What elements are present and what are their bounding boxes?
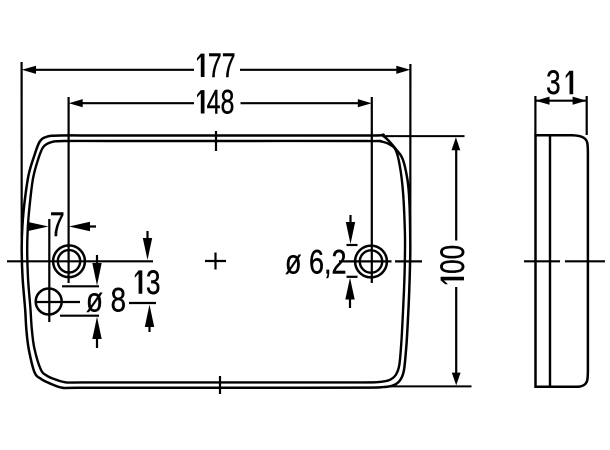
svg-text:77: 77 (208, 47, 236, 85)
svg-text:ø 6,2: ø 6,2 (285, 244, 347, 282)
svg-text:7: 7 (50, 206, 65, 244)
svg-text:00: 00 (434, 245, 472, 274)
svg-text:3: 3 (546, 64, 561, 102)
svg-text:ø 8: ø 8 (86, 282, 126, 320)
svg-text:48: 48 (207, 84, 235, 122)
svg-text:3: 3 (146, 264, 161, 302)
